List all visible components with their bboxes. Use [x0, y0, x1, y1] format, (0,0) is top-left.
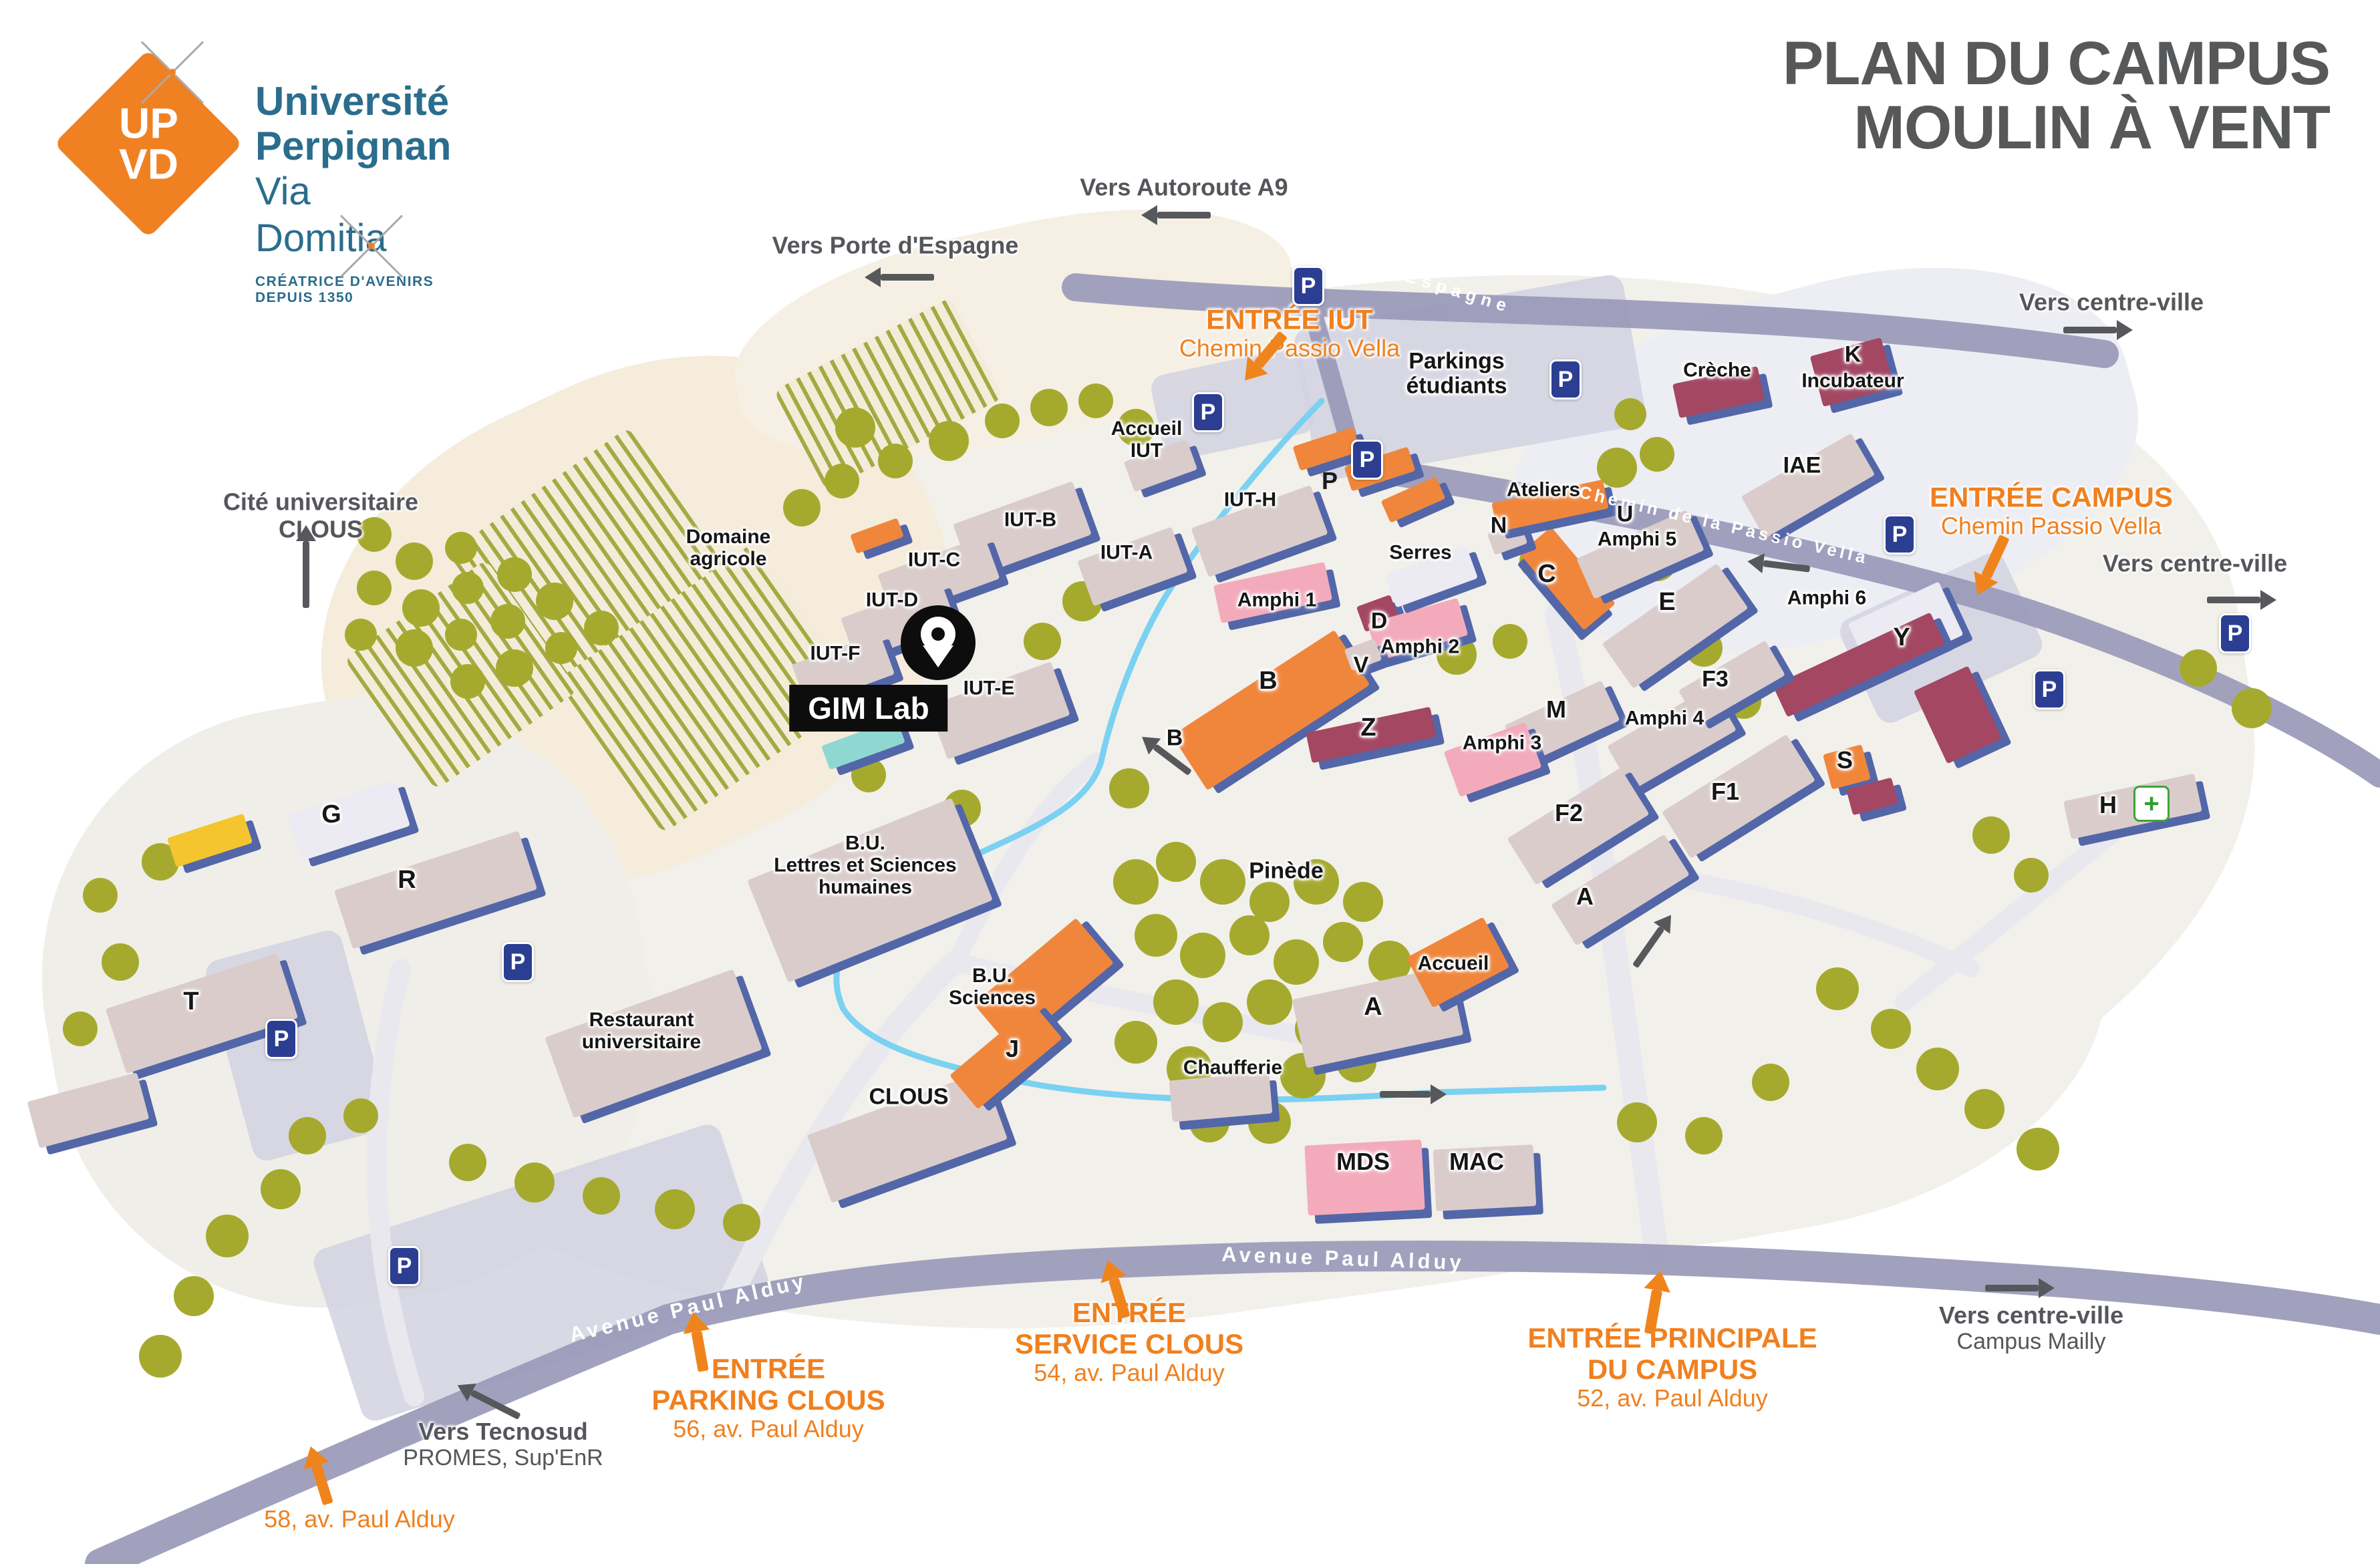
tree: [2232, 688, 2272, 728]
direction-text: Vers centre-ville: [2019, 288, 2204, 315]
tree: [514, 1162, 555, 1203]
entrance-text: DU CAMPUS: [1527, 1354, 1817, 1385]
parking-icon: P: [502, 942, 534, 982]
entrance-label: ENTRÉE PRINCIPALEDU CAMPUS52, av. Paul A…: [1527, 1322, 1817, 1412]
building-label: B.U. Sciences: [949, 965, 1036, 1009]
tree: [449, 1144, 486, 1181]
map-title: PLAN DU CAMPUS MOULIN À VENT: [1783, 32, 2330, 160]
direction-arrow-icon: [1985, 1278, 2055, 1298]
direction-text: Vers Autoroute A9: [1080, 173, 1288, 200]
tree: [1493, 624, 1527, 659]
building-label: R: [398, 867, 416, 895]
building-label: Ateliers: [1507, 479, 1580, 501]
tree: [1156, 842, 1196, 882]
building: [1169, 1072, 1273, 1122]
tree: [878, 444, 913, 478]
direction-text: Vers centre-ville: [2103, 549, 2287, 577]
tree: [1114, 1021, 1157, 1064]
direction-text: Vers Tecnosud: [403, 1418, 603, 1445]
entrance-label: 58, av. Paul Alduy: [264, 1506, 455, 1533]
tree: [1180, 933, 1225, 978]
tree: [139, 1335, 182, 1378]
building-label: B.U. Lettres et Sciences humaines: [774, 832, 956, 899]
building-label: IUT-C: [908, 549, 960, 571]
building-label: Amphi 2: [1380, 636, 1459, 658]
parking-icon: P: [1292, 266, 1324, 306]
building-label: Accueil IUT: [1111, 418, 1183, 462]
gim-lab-pin: [901, 605, 976, 680]
entrance-text: 52, av. Paul Alduy: [1527, 1385, 1817, 1412]
tree: [1200, 859, 1245, 905]
tree: [536, 583, 573, 620]
building-label: G: [321, 801, 341, 829]
building-label: Amphi 1: [1237, 589, 1316, 611]
tree: [835, 408, 875, 448]
tree: [1153, 979, 1199, 1025]
university-tagline: CRÉATRICE D'AVENIRS DEPUIS 1350: [255, 274, 451, 306]
tree: [2017, 1128, 2059, 1170]
entrance-text: 58, av. Paul Alduy: [264, 1506, 455, 1533]
tree: [1816, 967, 1859, 1010]
tree: [345, 619, 377, 651]
building-label: K: [1845, 342, 1862, 367]
direction-arrow-icon: [296, 525, 316, 608]
building-label: IUT-H: [1224, 489, 1276, 511]
tree: [289, 1117, 326, 1154]
building-label: S: [1837, 747, 1853, 774]
building-label: Serres: [1389, 542, 1451, 564]
building-label: Incubateur: [1801, 370, 1904, 392]
building-label: F3: [1702, 667, 1729, 691]
direction-label: Cité universitaire CLOUS: [223, 488, 418, 544]
building-label: Amphi 3: [1463, 732, 1541, 754]
tree: [2014, 858, 2049, 893]
tree: [1916, 1048, 1959, 1090]
tree: [851, 758, 886, 792]
building-label: MDS: [1336, 1148, 1390, 1175]
tree: [452, 572, 484, 604]
building-label: J: [1006, 1036, 1019, 1062]
tree: [1685, 1117, 1723, 1154]
building-label: M: [1546, 696, 1566, 723]
tree: [2180, 649, 2217, 687]
direction-label: Vers centre-villeCampus Mailly: [1939, 1301, 2123, 1355]
building-label: IAE: [1783, 453, 1821, 478]
building-label: E: [1658, 589, 1675, 617]
building-label: IUT-F: [810, 643, 861, 665]
entrance-text: Chemin Passio Vella: [1930, 512, 2173, 539]
tree: [723, 1204, 760, 1241]
building-label: A: [1576, 883, 1594, 910]
tree: [985, 404, 1020, 438]
direction-text: Vers Porte d'Espagne: [772, 231, 1019, 259]
building-label: B: [1259, 667, 1277, 695]
building-label: Chaufferie: [1183, 1057, 1282, 1079]
location-pin-icon: [901, 605, 976, 680]
building-label: IUT-B: [1004, 509, 1056, 531]
tree: [825, 464, 859, 498]
tree: [450, 664, 485, 699]
building-label: Parkings étudiants: [1406, 349, 1507, 400]
tree: [929, 421, 969, 461]
tree: [1203, 1002, 1243, 1042]
tree: [396, 629, 433, 667]
tree: [497, 557, 532, 592]
gim-lab-label: GIM Lab: [789, 685, 947, 732]
entrance-label: ENTRÉEPARKING CLOUS56, av. Paul Alduy: [651, 1353, 885, 1442]
building-label: V: [1354, 653, 1369, 677]
tree: [1614, 398, 1646, 430]
tree: [1343, 882, 1383, 922]
building-label: IUT-A: [1100, 542, 1153, 564]
tree: [496, 649, 533, 687]
tree: [357, 571, 392, 605]
tree: [1247, 979, 1292, 1025]
tree: [1972, 816, 2010, 854]
building-label: N: [1491, 513, 1507, 538]
university-name: Université Perpignan Via Domitia CRÉATRI…: [255, 79, 451, 306]
direction-label: Vers Autoroute A9: [1080, 173, 1288, 200]
building-label: C: [1537, 561, 1555, 589]
tree: [343, 1098, 378, 1133]
campus-map: GIM LabIUT-BIUT-AIUT-HIUT-CIUT-DIUT-FIUT…: [0, 0, 2380, 1564]
direction-subtext: PROMES, Sup'EnR: [403, 1445, 603, 1471]
building-label: H: [2099, 792, 2117, 818]
health-cross-icon: +: [2133, 786, 2170, 822]
parking-icon: P: [1884, 514, 1916, 555]
parking-icon: P: [2033, 669, 2065, 710]
tree: [490, 604, 525, 639]
building-label: U: [1617, 502, 1634, 526]
tree: [1078, 383, 1113, 418]
tree: [83, 878, 118, 913]
building-label: Amphi 6: [1787, 587, 1866, 609]
tree: [261, 1169, 301, 1209]
direction-text: Cité universitaire CLOUS: [223, 488, 418, 544]
tree: [402, 589, 440, 627]
direction-label: Vers Porte d'Espagne: [772, 231, 1019, 259]
building-label: Accueil: [1418, 953, 1489, 975]
tree: [545, 632, 577, 664]
tree: [1871, 1009, 1911, 1049]
tree: [445, 619, 477, 651]
tree: [445, 532, 477, 564]
entrance-text: ENTRÉE CAMPUS: [1930, 481, 2173, 512]
tree: [783, 489, 821, 526]
tree: [583, 1177, 620, 1215]
parking-icon: P: [2219, 613, 2251, 653]
direction-text: Vers centre-ville: [1939, 1301, 2123, 1329]
tree: [206, 1215, 249, 1257]
building-label: Domaine agricole: [686, 526, 771, 570]
tree: [102, 943, 139, 981]
direction-label: Vers centre-ville: [2103, 549, 2287, 577]
entrance-text: ENTRÉE: [651, 1353, 885, 1384]
entrance-text: PARKING CLOUS: [651, 1384, 885, 1416]
building-label: Amphi 4: [1625, 708, 1704, 730]
entrance-text: SERVICE CLOUS: [1015, 1328, 1243, 1360]
direction-label: Vers centre-ville: [2019, 288, 2204, 315]
entrance-label: ENTRÉE CAMPUSChemin Passio Vella: [1930, 481, 2173, 539]
direction-arrow-icon: [2063, 320, 2133, 340]
building-label: D: [1371, 609, 1388, 633]
tree: [174, 1276, 214, 1316]
tree: [1274, 939, 1319, 985]
building-label: CLOUS: [869, 1084, 949, 1109]
entrance-text: ENTRÉE PRINCIPALE: [1527, 1322, 1817, 1354]
entrance-text: 56, av. Paul Alduy: [651, 1416, 885, 1442]
building-label: A: [1364, 993, 1382, 1022]
building-label: Amphi 5: [1598, 528, 1676, 551]
building-label: Pinède: [1249, 858, 1323, 883]
tree: [63, 1011, 98, 1046]
direction-arrow-icon: [865, 267, 934, 287]
tree: [1030, 389, 1068, 426]
tree: [1323, 922, 1363, 962]
tree: [584, 611, 619, 645]
tree: [396, 542, 433, 580]
tree: [1964, 1089, 2004, 1129]
parking-icon: P: [265, 1019, 297, 1059]
parking-icon: P: [1192, 392, 1224, 432]
direction-subtext: Campus Mailly: [1939, 1329, 2123, 1355]
tree: [1617, 1102, 1657, 1142]
entrance-text: ENTRÉE IUT: [1179, 303, 1400, 335]
building-label: F1: [1711, 778, 1739, 805]
tree: [655, 1189, 695, 1229]
entrance-label: ENTRÉE IUTChemin Passio Vella: [1179, 303, 1400, 361]
tree: [1640, 437, 1674, 472]
building-label: IUT-E: [963, 677, 1015, 699]
building-label: Z: [1360, 714, 1376, 742]
direction-arrow-icon: [1141, 205, 1211, 225]
building-label: Y: [1893, 624, 1910, 652]
tree: [1109, 768, 1149, 808]
building-label: T: [183, 988, 198, 1016]
tree: [1024, 623, 1061, 660]
direction-arrow-icon: [1380, 1084, 1447, 1104]
tree: [1229, 915, 1270, 955]
parking-letter-label: P: [1322, 467, 1338, 495]
direction-label: Vers TecnosudPROMES, Sup'EnR: [403, 1418, 603, 1471]
building-label: F2: [1555, 800, 1583, 826]
building-label: MAC: [1449, 1148, 1504, 1175]
parking-icon: P: [388, 1246, 420, 1286]
parking-icon: P: [1549, 359, 1582, 400]
entrance-text: 54, av. Paul Alduy: [1015, 1360, 1243, 1386]
direction-arrow-icon: [2207, 590, 2276, 610]
parking-icon: P: [1351, 440, 1383, 480]
tree: [1752, 1064, 1789, 1101]
building-label: Crèche: [1683, 359, 1751, 381]
tree: [1113, 859, 1159, 905]
tree: [1135, 914, 1177, 957]
building-label: Restaurant universitaire: [582, 1009, 701, 1053]
